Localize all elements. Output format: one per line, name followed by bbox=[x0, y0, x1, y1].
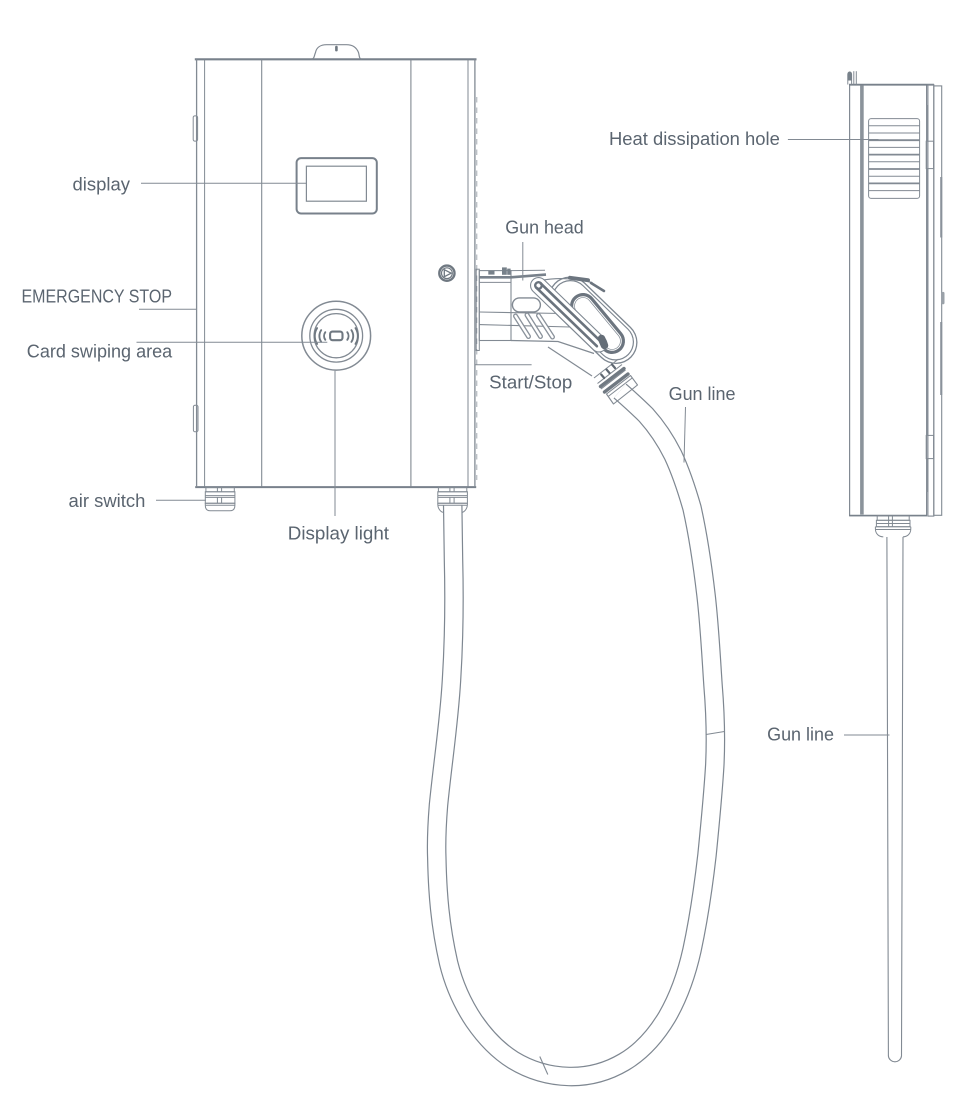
svg-text:Start/Stop: Start/Stop bbox=[489, 372, 572, 393]
svg-text:Gun line: Gun line bbox=[767, 724, 834, 745]
svg-text:Gun head: Gun head bbox=[505, 216, 583, 237]
svg-text:air switch: air switch bbox=[69, 490, 146, 511]
svg-text:EMERGENCY STOP: EMERGENCY STOP bbox=[22, 285, 173, 306]
svg-text:display: display bbox=[73, 173, 131, 194]
svg-text:Display light: Display light bbox=[288, 523, 389, 544]
svg-text:Card swiping area: Card swiping area bbox=[27, 341, 173, 362]
svg-text:Gun line: Gun line bbox=[669, 383, 736, 404]
svg-text:Heat dissipation hole: Heat dissipation hole bbox=[609, 128, 780, 149]
